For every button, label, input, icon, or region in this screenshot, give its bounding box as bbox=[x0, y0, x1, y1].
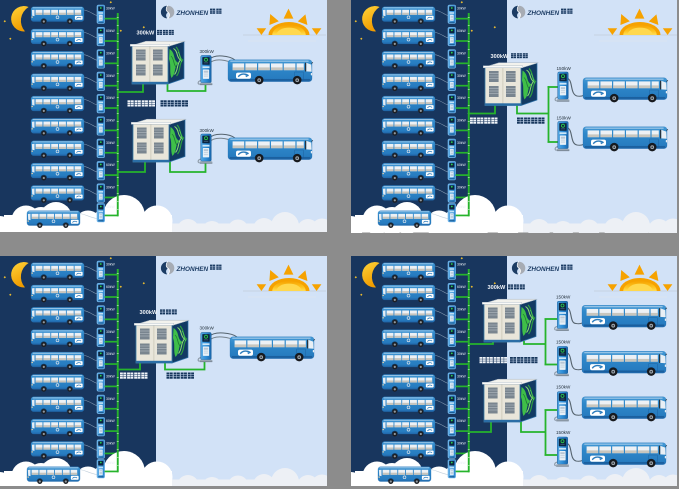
svg-text:60kW: 60kW bbox=[106, 285, 115, 289]
svg-text:30kW: 30kW bbox=[106, 263, 115, 267]
svg-text:150kW: 150kW bbox=[556, 430, 571, 435]
svg-text:30kW: 30kW bbox=[457, 51, 466, 55]
svg-text:60kW: 60kW bbox=[457, 285, 466, 289]
svg-text:300kW: 300kW bbox=[488, 285, 506, 291]
svg-text:30kW: 30kW bbox=[457, 442, 466, 446]
svg-text:30kW: 30kW bbox=[457, 141, 466, 145]
svg-text:ZHONHEN: ZHONHEN bbox=[527, 266, 560, 273]
svg-text:30kW: 30kW bbox=[106, 141, 115, 145]
svg-text:30kW: 30kW bbox=[457, 74, 466, 78]
svg-text:30kW: 30kW bbox=[457, 352, 466, 356]
svg-text:30kW: 30kW bbox=[457, 461, 466, 465]
svg-text:30kW: 30kW bbox=[106, 7, 115, 11]
svg-text:300kW: 300kW bbox=[140, 310, 158, 316]
svg-text:ZHONHEN: ZHONHEN bbox=[176, 10, 209, 17]
svg-text:30kW: 30kW bbox=[106, 442, 115, 446]
svg-text:ZHONHEN: ZHONHEN bbox=[527, 10, 560, 17]
svg-text:30kW: 30kW bbox=[106, 96, 115, 100]
svg-text:ZHONHEN: ZHONHEN bbox=[176, 266, 209, 273]
svg-text:60kW: 60kW bbox=[457, 163, 466, 167]
svg-text:300kW: 300kW bbox=[200, 128, 215, 133]
svg-text:150kW: 150kW bbox=[556, 294, 571, 299]
svg-text:150kW: 150kW bbox=[556, 340, 571, 345]
svg-text:30kW: 30kW bbox=[457, 263, 466, 267]
svg-text:30kW: 30kW bbox=[457, 330, 466, 334]
svg-text:30kW: 30kW bbox=[457, 307, 466, 311]
svg-text:30kW: 30kW bbox=[457, 205, 466, 209]
svg-text:30kW: 30kW bbox=[457, 96, 466, 100]
svg-text:30kW: 30kW bbox=[457, 7, 466, 11]
svg-text:60kW: 60kW bbox=[106, 163, 115, 167]
svg-text:300kW: 300kW bbox=[137, 31, 155, 37]
svg-text:30kW: 30kW bbox=[106, 330, 115, 334]
svg-text:60kW: 60kW bbox=[457, 29, 466, 33]
svg-text:30kW: 30kW bbox=[106, 307, 115, 311]
svg-text:300kW: 300kW bbox=[491, 54, 509, 60]
svg-text:30kW: 30kW bbox=[457, 186, 466, 190]
svg-text:300kW: 300kW bbox=[200, 49, 215, 54]
svg-text:30kW: 30kW bbox=[106, 374, 115, 378]
svg-text:300kW: 300kW bbox=[200, 326, 215, 331]
svg-text:150kW: 150kW bbox=[556, 385, 571, 390]
svg-text:30kW: 30kW bbox=[106, 397, 115, 401]
svg-text:60kW: 60kW bbox=[106, 419, 115, 423]
svg-text:30kW: 30kW bbox=[106, 51, 115, 55]
svg-text:60kW: 60kW bbox=[457, 419, 466, 423]
svg-text:30kW: 30kW bbox=[457, 397, 466, 401]
svg-text:30kW: 30kW bbox=[106, 205, 115, 209]
svg-text:60kW: 60kW bbox=[106, 29, 115, 33]
svg-text:30kW: 30kW bbox=[106, 186, 115, 190]
svg-text:30kW: 30kW bbox=[106, 461, 115, 465]
svg-text:150kW: 150kW bbox=[557, 116, 572, 121]
svg-text:30kW: 30kW bbox=[457, 374, 466, 378]
svg-text:150kW: 150kW bbox=[557, 66, 572, 71]
svg-text:30kW: 30kW bbox=[106, 74, 115, 78]
svg-text:30kW: 30kW bbox=[457, 118, 466, 122]
svg-text:30kW: 30kW bbox=[106, 118, 115, 122]
svg-text:30kW: 30kW bbox=[106, 352, 115, 356]
